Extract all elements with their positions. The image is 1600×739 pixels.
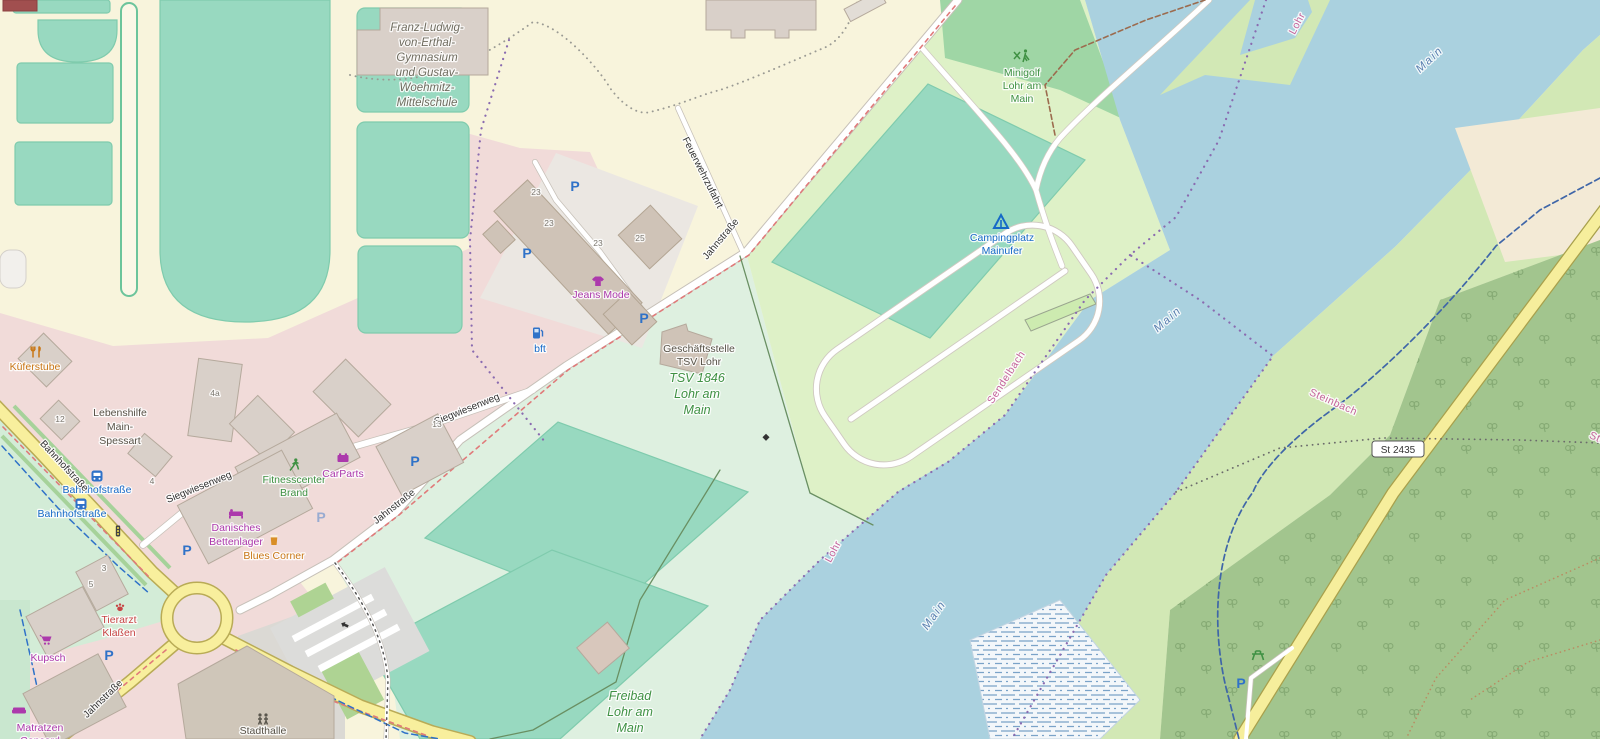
house-number: 3 bbox=[102, 563, 107, 573]
bft-label: bft bbox=[534, 343, 546, 355]
jeans-mode-label: Jeans Mode bbox=[572, 289, 629, 301]
svg-text:Mainufer: Mainufer bbox=[982, 245, 1023, 257]
house-number: 12 bbox=[55, 414, 65, 424]
house-number: 13 bbox=[432, 419, 442, 429]
parking-icon: P bbox=[570, 178, 579, 194]
svg-text:Concord: Concord bbox=[20, 735, 60, 739]
svg-text:Campingplatz: Campingplatz bbox=[970, 232, 1034, 244]
house-number: 23 bbox=[544, 218, 554, 228]
parking-icon: P bbox=[410, 453, 419, 469]
svg-text:von-Erthal-: von-Erthal- bbox=[399, 37, 455, 49]
svg-text:Fitnesscenter: Fitnesscenter bbox=[262, 474, 326, 486]
house-number: 5 bbox=[89, 579, 94, 589]
kueferstube-label: Küferstube bbox=[10, 361, 61, 373]
svg-text:Lohr am: Lohr am bbox=[674, 387, 720, 401]
svg-text:Lebenshilfe: Lebenshilfe bbox=[93, 407, 147, 419]
svg-text:Main: Main bbox=[1011, 93, 1034, 105]
svg-text:Franz-Ludwig-: Franz-Ludwig- bbox=[390, 22, 464, 34]
parking-icon: P bbox=[522, 245, 531, 261]
house-number: 4a bbox=[210, 388, 220, 398]
parking-icon: P bbox=[1236, 675, 1245, 691]
svg-text:St 2435: St 2435 bbox=[1381, 445, 1416, 456]
tierarzt-label: Tierarzt Klaßen bbox=[101, 614, 136, 639]
svg-text:Spessart: Spessart bbox=[99, 435, 141, 447]
svg-text:Tierarzt: Tierarzt bbox=[101, 614, 136, 626]
traffic-signal-icon bbox=[116, 526, 120, 537]
svg-text:Freibad: Freibad bbox=[609, 689, 652, 703]
carparts-label: CarParts bbox=[322, 468, 363, 480]
svg-text:Klaßen: Klaßen bbox=[102, 627, 135, 639]
house-number: 4 bbox=[150, 476, 155, 486]
svg-text:Main: Main bbox=[683, 403, 710, 417]
svg-text:Gymnasium: Gymnasium bbox=[396, 52, 458, 64]
park-strip bbox=[0, 600, 30, 739]
parking-icon: P bbox=[104, 647, 113, 663]
matratzen-label: Matratzen Concord bbox=[17, 722, 64, 739]
svg-text:Main: Main bbox=[616, 721, 643, 735]
parking-icon: P bbox=[182, 542, 191, 558]
svg-text:Minigolf: Minigolf bbox=[1004, 67, 1040, 79]
svg-text:Brand: Brand bbox=[280, 487, 308, 499]
svg-text:Geschäftsstelle: Geschäftsstelle bbox=[663, 343, 735, 355]
svg-text:Lohr am: Lohr am bbox=[607, 705, 653, 719]
bus-stop-label: Bahnhofstraße bbox=[63, 484, 132, 496]
svg-text:und Gustav-: und Gustav- bbox=[396, 67, 459, 79]
kupsch-label: Kupsch bbox=[30, 652, 65, 664]
parking-icon: P bbox=[639, 310, 648, 326]
blues-corner-label: Blues Corner bbox=[243, 550, 305, 562]
svg-text:Danisches: Danisches bbox=[211, 522, 260, 534]
bus-stop-label: Bahnhofstraße bbox=[38, 508, 107, 520]
house-number: 25 bbox=[635, 233, 645, 243]
house-number: 23 bbox=[531, 187, 541, 197]
bus-stop-icon bbox=[92, 471, 103, 482]
stadthalle-label: Stadthalle bbox=[240, 725, 287, 737]
house-number: 23 bbox=[593, 238, 603, 248]
map-canvas[interactable]: P P P P P P P P bbox=[0, 0, 1600, 739]
svg-text:Main-: Main- bbox=[107, 421, 134, 433]
parking-icon-faded: P bbox=[316, 509, 325, 525]
svg-text:TSV Lohr: TSV Lohr bbox=[677, 356, 722, 368]
svg-text:Lohr am: Lohr am bbox=[1003, 80, 1042, 92]
couch-icon bbox=[12, 708, 26, 714]
svg-text:Matratzen: Matratzen bbox=[17, 722, 64, 734]
road-ref-badge: St 2435 bbox=[1372, 441, 1424, 457]
svg-text:Bettenlager: Bettenlager bbox=[209, 536, 263, 548]
svg-text:Woehmitz-: Woehmitz- bbox=[400, 82, 455, 94]
svg-text:Mittelschule: Mittelschule bbox=[397, 97, 458, 109]
svg-text:TSV 1846: TSV 1846 bbox=[669, 371, 725, 385]
drink-icon bbox=[271, 535, 278, 545]
